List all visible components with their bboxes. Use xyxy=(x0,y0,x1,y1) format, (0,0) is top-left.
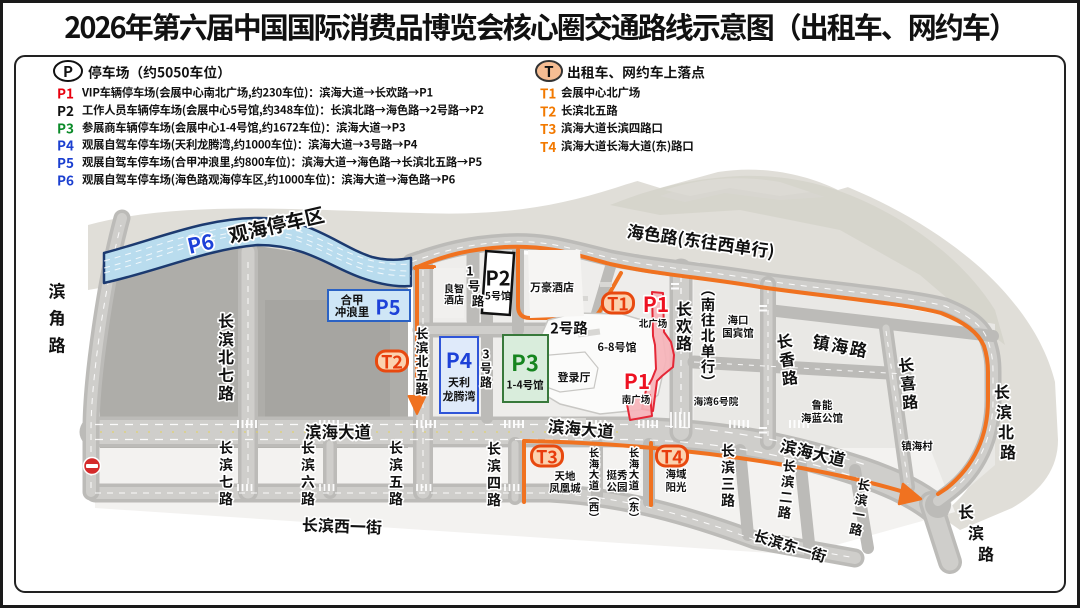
svg-text:P6: P6 xyxy=(57,170,74,190)
svg-text:T2: T2 xyxy=(381,349,403,375)
svg-text:国宾馆: 国宾馆 xyxy=(722,326,754,341)
svg-text:路: 路 xyxy=(218,380,234,404)
svg-text:5号馆: 5号馆 xyxy=(485,288,511,303)
svg-text:路: 路 xyxy=(415,379,428,398)
svg-text:长滨北五路: 长滨北五路 xyxy=(561,102,618,118)
svg-text:路: 路 xyxy=(676,330,692,354)
svg-text:P1: P1 xyxy=(643,289,669,319)
svg-text:长滨西一街: 长滨西一街 xyxy=(302,512,383,539)
svg-text:出租车、网约车上落点: 出租车、网约车上落点 xyxy=(567,62,705,82)
svg-text:路: 路 xyxy=(487,490,501,510)
svg-text:路: 路 xyxy=(301,489,315,509)
svg-text:滨海大道长滨四路口: 滨海大道长滨四路口 xyxy=(561,120,663,136)
svg-text:路: 路 xyxy=(721,491,735,511)
svg-text:镇海村: 镇海村 xyxy=(901,439,933,454)
svg-text:会展中心北广场: 会展中心北广场 xyxy=(561,85,641,101)
svg-text:︶: ︶ xyxy=(589,510,600,525)
svg-text:路: 路 xyxy=(777,501,793,522)
svg-text:2号路: 2号路 xyxy=(550,318,588,339)
svg-text:路: 路 xyxy=(480,374,492,391)
svg-text:北广场: 北广场 xyxy=(639,316,668,330)
svg-text:路: 路 xyxy=(1000,439,1016,463)
svg-text:路: 路 xyxy=(780,364,799,390)
svg-text:路: 路 xyxy=(389,489,403,509)
svg-text:T4: T4 xyxy=(540,136,556,156)
svg-text:6-8号馆: 6-8号馆 xyxy=(597,339,636,355)
svg-text:海蓝公馆: 海蓝公馆 xyxy=(801,411,843,426)
svg-text:路: 路 xyxy=(472,291,485,310)
svg-text:T1: T1 xyxy=(607,291,629,317)
svg-text:︶: ︶ xyxy=(629,510,640,525)
svg-text:︶: ︶ xyxy=(701,372,716,393)
svg-text:P: P xyxy=(63,61,73,82)
svg-text:阳光: 阳光 xyxy=(666,480,687,495)
svg-text:VIP车辆停车场(会展中心南北广场,约230车位)：滨海大道: VIP车辆停车场(会展中心南北广场,约230车位)：滨海大道→长欢路→P1 xyxy=(81,85,433,101)
svg-text:工作人员车辆停车场(会展中心5号馆,约348车位)：长滨北路: 工作人员车辆停车场(会展中心5号馆,约348车位)：长滨北路→海色路→2号路→P… xyxy=(82,102,484,118)
svg-text:观展自驾车停车场(海色路观海停车区,约1000车位)：滨海大: 观展自驾车停车场(海色路观海停车区,约1000车位)：滨海大道→海色路→P6 xyxy=(82,172,456,188)
svg-text:万豪酒店: 万豪酒店 xyxy=(530,279,574,295)
svg-text:滨: 滨 xyxy=(49,278,66,303)
svg-text:凤凰城: 凤凰城 xyxy=(549,481,581,496)
svg-text:P3: P3 xyxy=(511,346,539,378)
svg-text:酒店: 酒店 xyxy=(444,292,464,307)
svg-text:公园: 公园 xyxy=(607,480,628,495)
svg-text:观展自驾车停车场(天利龙腾湾,约1000车位)：滨海大道→3: 观展自驾车停车场(天利龙腾湾,约1000车位)：滨海大道→3号路→P4 xyxy=(82,137,418,153)
svg-text:T: T xyxy=(544,61,553,82)
svg-text:路: 路 xyxy=(901,388,919,414)
svg-text:路: 路 xyxy=(219,489,233,509)
svg-text:路: 路 xyxy=(49,332,66,357)
svg-text:T3: T3 xyxy=(536,444,558,470)
svg-text:P5: P5 xyxy=(375,292,400,321)
svg-text:2026年第六届中国国际消费品博览会核心圈交通路线示意图（出: 2026年第六届中国国际消费品博览会核心圈交通路线示意图（出租车、网约车） xyxy=(64,5,1015,47)
svg-text:P4: P4 xyxy=(446,345,472,375)
svg-text:登录厅: 登录厅 xyxy=(558,369,591,385)
svg-text:参展商车辆停车场(会展中心1-4号馆,约1672车位)：滨海: 参展商车辆停车场(会展中心1-4号馆,约1672车位)：滨海大道→P3 xyxy=(82,119,406,135)
svg-text:角: 角 xyxy=(49,305,66,330)
svg-text:1-4号馆: 1-4号馆 xyxy=(506,378,543,393)
svg-text:观展自驾车停车场(合甲冲浪里,约800车位)：滨海大道→海色: 观展自驾车停车场(合甲冲浪里,约800车位)：滨海大道→海色路→长滨北五路→P5 xyxy=(82,154,482,170)
svg-text:滨海大道长海大道(东)路口: 滨海大道长海大道(东)路口 xyxy=(561,138,694,154)
svg-text:冲浪里: 冲浪里 xyxy=(335,304,370,320)
svg-text:海湾6号院: 海湾6号院 xyxy=(694,394,739,408)
svg-text:龙腾湾: 龙腾湾 xyxy=(443,388,476,404)
svg-text:路: 路 xyxy=(978,541,994,565)
svg-text:南广场: 南广场 xyxy=(622,392,651,406)
svg-text:停车场（约5050车位）: 停车场（约5050车位） xyxy=(88,62,231,82)
